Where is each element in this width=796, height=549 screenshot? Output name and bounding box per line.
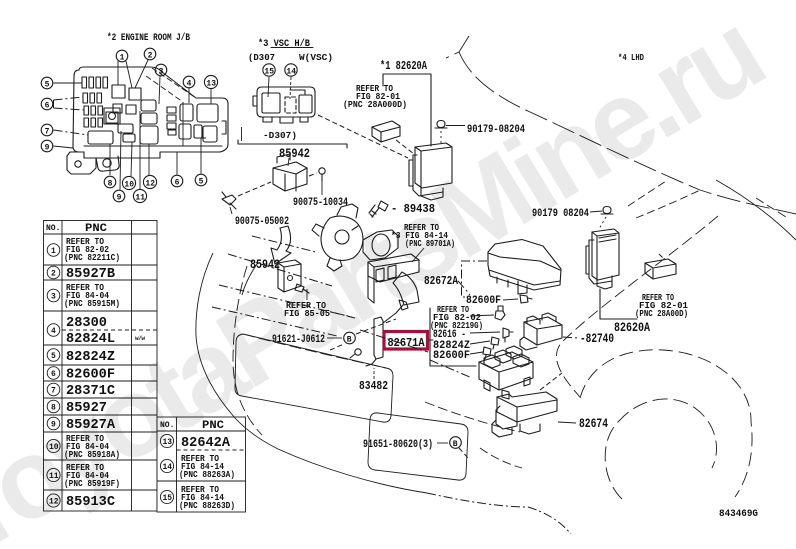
svg-text:90075-05002: 90075-05002 [235, 216, 289, 228]
svg-text:83482: 83482 [359, 379, 388, 393]
svg-text:-82740: -82740 [580, 332, 614, 346]
svg-text:7: 7 [45, 128, 50, 137]
svg-text:PNC: PNC [85, 223, 107, 235]
svg-text:3: 3 [51, 293, 56, 302]
svg-text:6: 6 [45, 102, 50, 111]
svg-text:90075-10034: 90075-10034 [293, 197, 348, 209]
svg-text:13: 13 [206, 80, 216, 89]
svg-text:15: 15 [264, 68, 274, 77]
svg-text:15: 15 [163, 494, 173, 503]
svg-text:6: 6 [51, 370, 56, 379]
svg-text:(PNC 28A000D): (PNC 28A000D) [343, 100, 407, 110]
svg-text:(PNC 88263A): (PNC 88263A) [179, 470, 235, 480]
svg-text:9: 9 [117, 194, 122, 203]
svg-text:(PNC 82211C): (PNC 82211C) [64, 253, 120, 263]
svg-text:4: 4 [51, 327, 56, 336]
svg-text:(PNC 88263D): (PNC 88263D) [179, 501, 235, 511]
svg-text:82600F: 82600F [433, 350, 470, 362]
svg-text:82600F: 82600F [466, 295, 501, 307]
svg-text:85927B: 85927B [66, 266, 116, 282]
svg-text:5: 5 [51, 352, 56, 361]
svg-text:82824L: 82824L [66, 331, 115, 347]
svg-text:*1 82620A: *1 82620A [380, 59, 428, 73]
svg-text:(PNC 85915M): (PNC 85915M) [64, 299, 120, 309]
svg-text:82620A: 82620A [614, 321, 650, 335]
svg-text:1: 1 [120, 54, 125, 63]
svg-text:14: 14 [286, 68, 296, 77]
svg-text:6: 6 [175, 179, 180, 188]
svg-text:82674: 82674 [579, 417, 608, 431]
svg-text:9: 9 [45, 144, 50, 153]
svg-text:12: 12 [145, 180, 155, 189]
svg-text:2: 2 [148, 52, 153, 61]
svg-text:8: 8 [108, 180, 113, 189]
svg-text:NO.: NO. [46, 224, 60, 233]
svg-text:843469G: 843469G [719, 508, 758, 520]
svg-text:91651-80620(3): 91651-80620(3) [363, 439, 433, 451]
svg-text:28300: 28300 [66, 315, 107, 331]
svg-text:5: 5 [199, 178, 204, 187]
svg-text:5: 5 [45, 81, 50, 90]
svg-text:*3 VSC H/B: *3 VSC H/B [258, 38, 311, 50]
svg-text:-D307): -D307) [263, 130, 297, 141]
svg-text:(PNC 28A00D): (PNC 28A00D) [635, 309, 688, 319]
svg-text:4: 4 [187, 80, 192, 89]
svg-text:11: 11 [135, 194, 145, 203]
svg-text:(D307: (D307 [248, 52, 275, 63]
svg-text:W(VSC): W(VSC) [299, 52, 333, 63]
svg-text:85942: 85942 [279, 146, 310, 161]
svg-text:2: 2 [51, 270, 56, 279]
svg-text:82671A: 82671A [388, 336, 426, 350]
svg-text:1: 1 [51, 247, 56, 256]
svg-text:10: 10 [124, 181, 134, 190]
svg-text:B: B [453, 440, 458, 449]
svg-text:3: 3 [159, 68, 164, 77]
svg-text:*2 ENGINE ROOM J/B: *2 ENGINE ROOM J/B [107, 32, 191, 44]
